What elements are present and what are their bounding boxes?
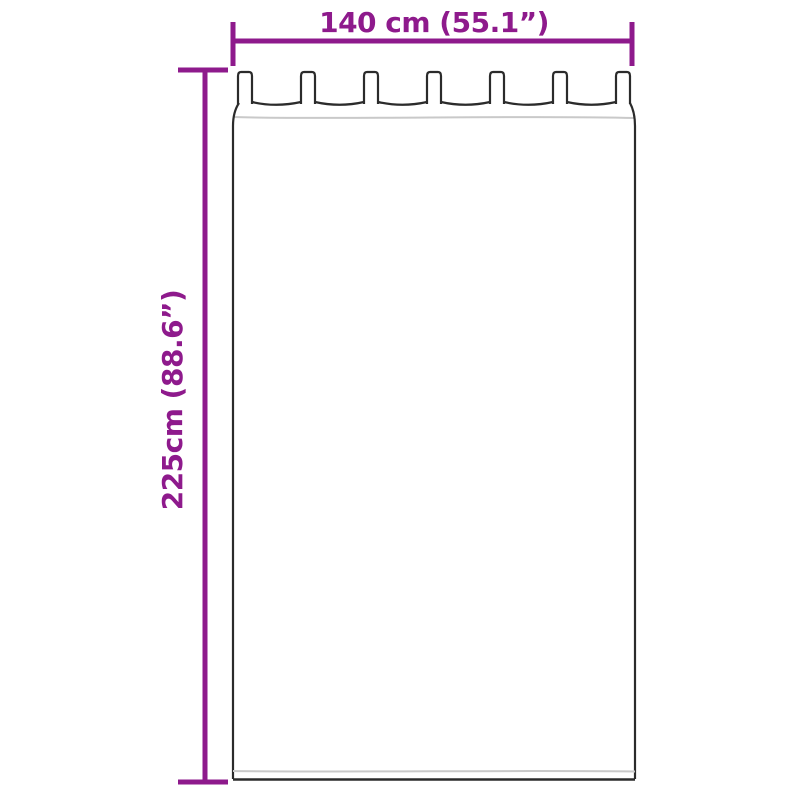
height-dimension: 225cm (88.6”) [156,70,228,782]
curtain-hem-seam [233,771,635,772]
curtain-right-edge [630,103,635,779]
curtain-tab [364,72,378,104]
width-dimension: 140 cm (55.1”) [233,6,632,66]
curtain-tab [301,72,315,104]
product-dimension-diagram: 140 cm (55.1”) 225cm (88.6”) [0,0,800,800]
curtain-tab [427,72,441,104]
curtain-tab [616,72,630,104]
curtain-tab [238,72,252,104]
diagram-canvas: 140 cm (55.1”) 225cm (88.6”) [0,0,800,800]
curtain-tab [490,72,504,104]
height-dimension-label: 225cm (88.6”) [156,290,189,511]
curtain-left-edge [233,103,239,779]
curtain-tab [553,72,567,104]
width-dimension-label: 140 cm (55.1”) [319,6,549,39]
curtain-illustration [233,72,635,780]
curtain-header-seam [233,117,635,118]
